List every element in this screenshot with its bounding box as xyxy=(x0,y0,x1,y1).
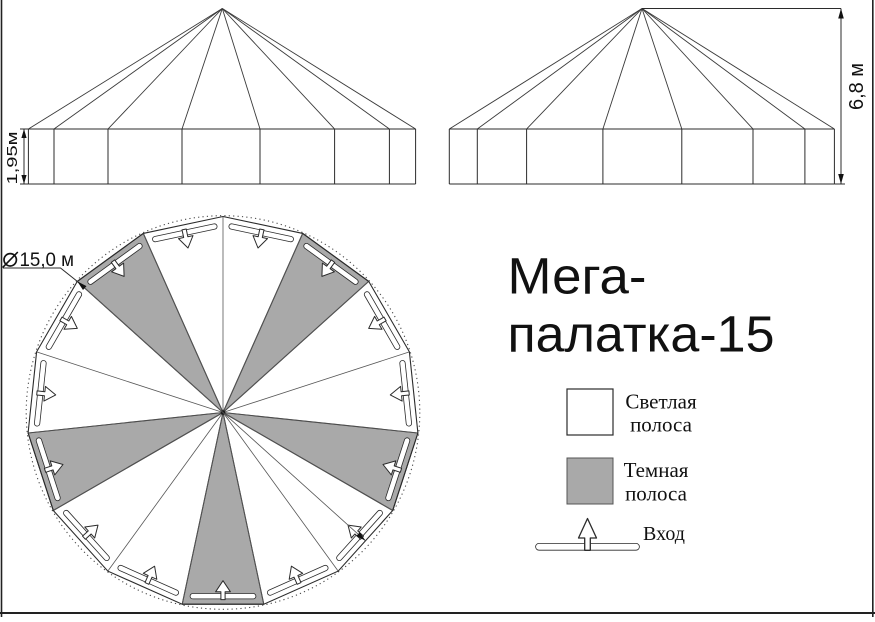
svg-text:Мега-: Мега- xyxy=(508,248,647,305)
svg-text:Вход: Вход xyxy=(643,523,685,545)
svg-text:палатка-15: палатка-15 xyxy=(508,306,775,363)
svg-text:1,95м: 1,95м xyxy=(5,132,21,185)
svg-text:Светлая: Светлая xyxy=(625,390,697,414)
svg-text:6,8 м: 6,8 м xyxy=(845,63,868,110)
svg-text:полоса: полоса xyxy=(630,413,693,437)
svg-text:Темная: Темная xyxy=(624,458,689,482)
svg-text:полоса: полоса xyxy=(625,482,688,506)
svg-text:15,0 м: 15,0 м xyxy=(20,250,75,271)
